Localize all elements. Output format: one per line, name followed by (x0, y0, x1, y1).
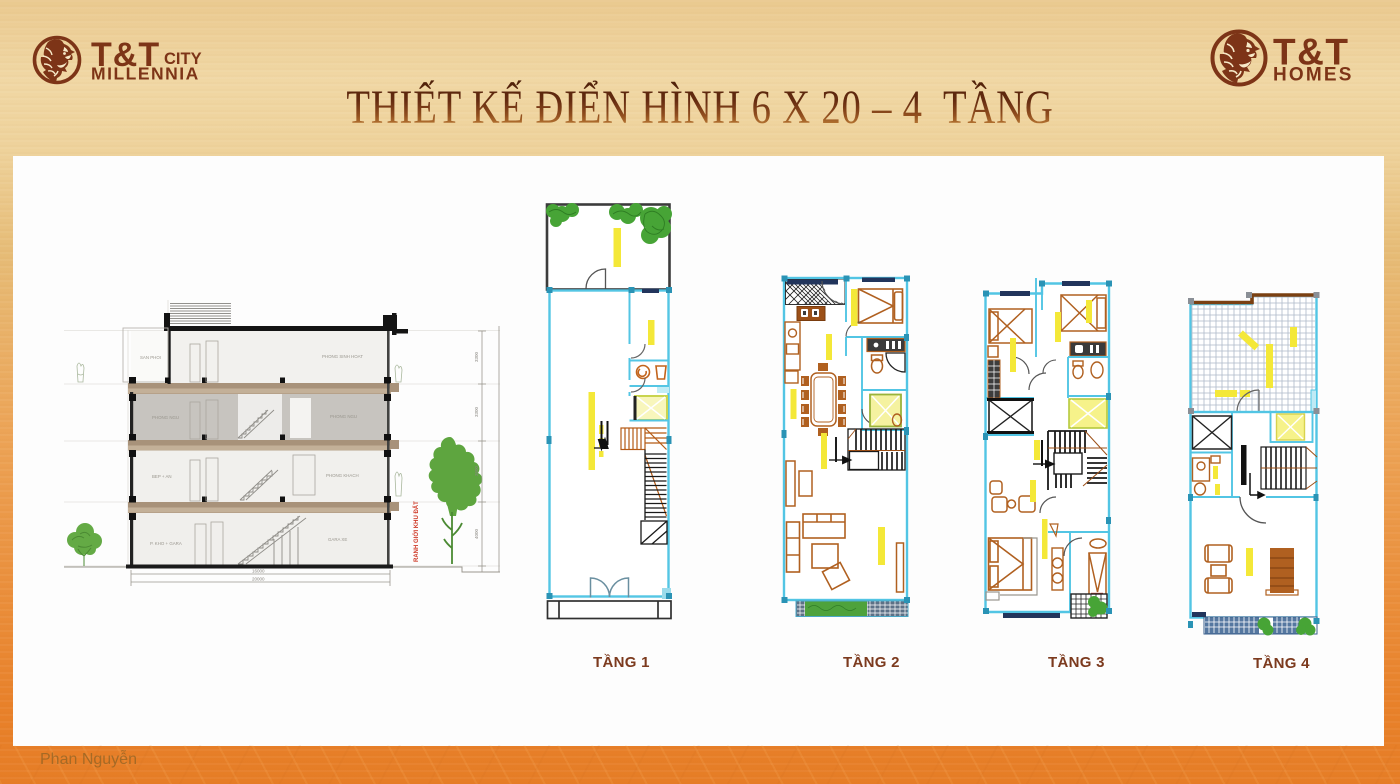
svg-text:PHONG SINH HOAT: PHONG SINH HOAT (322, 354, 363, 359)
svg-text:BEP + AN: BEP + AN (152, 474, 172, 479)
svg-text:SAN PHOI: SAN PHOI (140, 355, 161, 360)
svg-text:3300: 3300 (474, 351, 479, 362)
svg-text:3300: 3300 (474, 406, 479, 417)
svg-text:PHONG NGU: PHONG NGU (152, 415, 179, 420)
svg-text:RANH GIỚI KHU ĐẤT: RANH GIỚI KHU ĐẤT (412, 501, 420, 562)
svg-text:PHONG NGU: PHONG NGU (330, 414, 357, 419)
svg-text:MILLENNIA: MILLENNIA (91, 64, 200, 84)
svg-text:20000: 20000 (252, 577, 265, 582)
svg-text:3600: 3600 (474, 465, 479, 476)
svg-text:GARA XE: GARA XE (328, 537, 347, 542)
svg-text:HOMES: HOMES (1273, 65, 1354, 86)
svg-text:16000: 16000 (252, 569, 265, 574)
svg-text:PHONG KHACH: PHONG KHACH (326, 473, 359, 478)
svg-text:P. KHO + GARA: P. KHO + GARA (150, 541, 182, 546)
svg-text:4000: 4000 (474, 528, 479, 539)
